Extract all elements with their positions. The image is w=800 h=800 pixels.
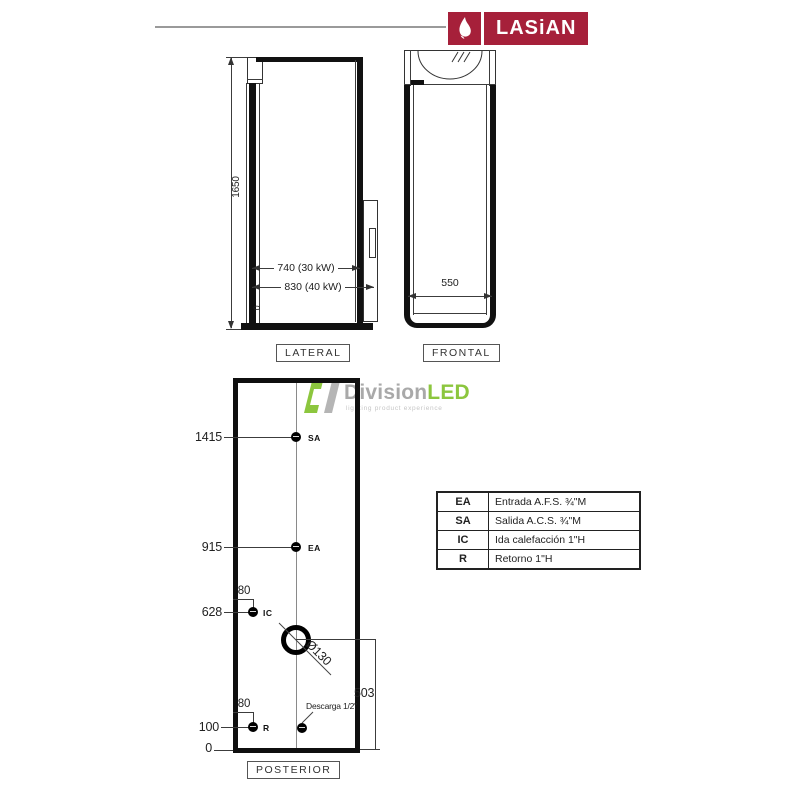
dim-arrow-down: [228, 321, 234, 329]
leader-sa: [224, 437, 292, 438]
ic-height-value: 628: [186, 605, 222, 619]
ea-connection-dot: [291, 542, 301, 552]
lateral-depth-40kw: 830 (40 kW): [263, 281, 363, 294]
ic-connection-label: IC: [263, 608, 273, 618]
lateral-caption: LATERAL: [276, 344, 350, 362]
legend-row: SA Salida A.C.S. ¾"M: [438, 512, 640, 531]
sa-connection-label: SA: [308, 433, 321, 443]
dim-arrow-left: [252, 284, 260, 290]
legend-row: IC Ida calefacción 1"H: [438, 531, 640, 550]
legend-code-sa: SA: [438, 512, 489, 531]
legend-code-ea: EA: [438, 493, 489, 512]
dim-line-503: [375, 639, 376, 750]
flue-level-line: [296, 639, 375, 640]
legend-desc-ea: Entrada A.F.S. ¾"M: [489, 493, 640, 512]
ic-offset-line: [233, 599, 254, 600]
legend-code-r: R: [438, 550, 489, 569]
drain-label: Descarga 1/2": [306, 701, 357, 711]
sa-connection-dot: [291, 432, 301, 442]
r-offset-line: [233, 712, 254, 713]
dim-tick-503: [360, 749, 380, 750]
zero-leader: [214, 750, 233, 751]
burner-handle: [369, 228, 376, 258]
frontal-body: [404, 85, 496, 328]
dim-arrow-right: [484, 293, 492, 299]
top-wall: [256, 57, 363, 62]
leader-ea: [224, 547, 292, 548]
leader-r: [221, 727, 249, 728]
frontal-width-value: 550: [404, 277, 496, 290]
r-height-value: 100: [184, 720, 219, 734]
lateral-height-value: 1650: [231, 166, 243, 208]
ea-height-value: 915: [186, 540, 222, 554]
watermark-tagline: lighting product experience: [346, 405, 443, 412]
legend-desc-r: Retorno 1"H: [489, 550, 640, 569]
ic-connection-dot: [248, 607, 258, 617]
sa-height-value: 1415: [186, 430, 222, 444]
base-plinth: [241, 323, 373, 330]
posterior-leader-lines: [275, 615, 345, 730]
brand-logo: LASiAN: [448, 12, 588, 45]
dim-arrow-right: [366, 284, 374, 290]
legend-row: EA Entrada A.F.S. ¾"M: [438, 493, 640, 512]
r-offset-value: 80: [234, 698, 254, 710]
burner-housing: [363, 200, 378, 322]
legend-table: EA Entrada A.F.S. ¾"M SA Salida A.C.S. ¾…: [437, 492, 640, 569]
posterior-zero-value: 0: [198, 741, 212, 755]
flue-outlet-line: [247, 79, 263, 80]
legend-desc-ic: Ida calefacción 1"H: [489, 531, 640, 550]
left-wall-outer-line: [246, 83, 247, 325]
lateral-depth-30kw: 740 (30 kW): [256, 262, 356, 275]
leader-ic: [224, 612, 249, 613]
ic-offset-value: 80: [234, 585, 254, 597]
legend-desc-sa: Salida A.C.S. ¾"M: [489, 512, 640, 531]
frontal-caption: FRONTAL: [423, 344, 500, 362]
legend-row: R Retorno 1"H: [438, 550, 640, 569]
lateral-zero-value: 0: [252, 301, 264, 315]
flame-icon: [448, 12, 481, 45]
watermark-word-accent: LED: [427, 381, 470, 404]
legend-code-ic: IC: [438, 531, 489, 550]
watermark-wordmark: DivisionLED: [344, 381, 470, 405]
dim-arrow-left: [408, 293, 416, 299]
drain-dot: [297, 723, 307, 733]
flue-bottom-value: 503: [354, 686, 374, 700]
boiler-dimensions-diagram: DivisionLED lighting product experience …: [0, 0, 800, 800]
posterior-caption: POSTERIOR: [247, 761, 340, 779]
dim-arrow-up: [228, 57, 234, 65]
brand-name: LASiAN: [484, 12, 588, 45]
ea-connection-label: EA: [308, 543, 321, 553]
r-connection-label: R: [263, 723, 270, 733]
r-connection-dot: [248, 722, 258, 732]
plinth-line: [413, 313, 486, 314]
dim-line-550: [408, 296, 492, 297]
header-rule: [155, 26, 446, 28]
